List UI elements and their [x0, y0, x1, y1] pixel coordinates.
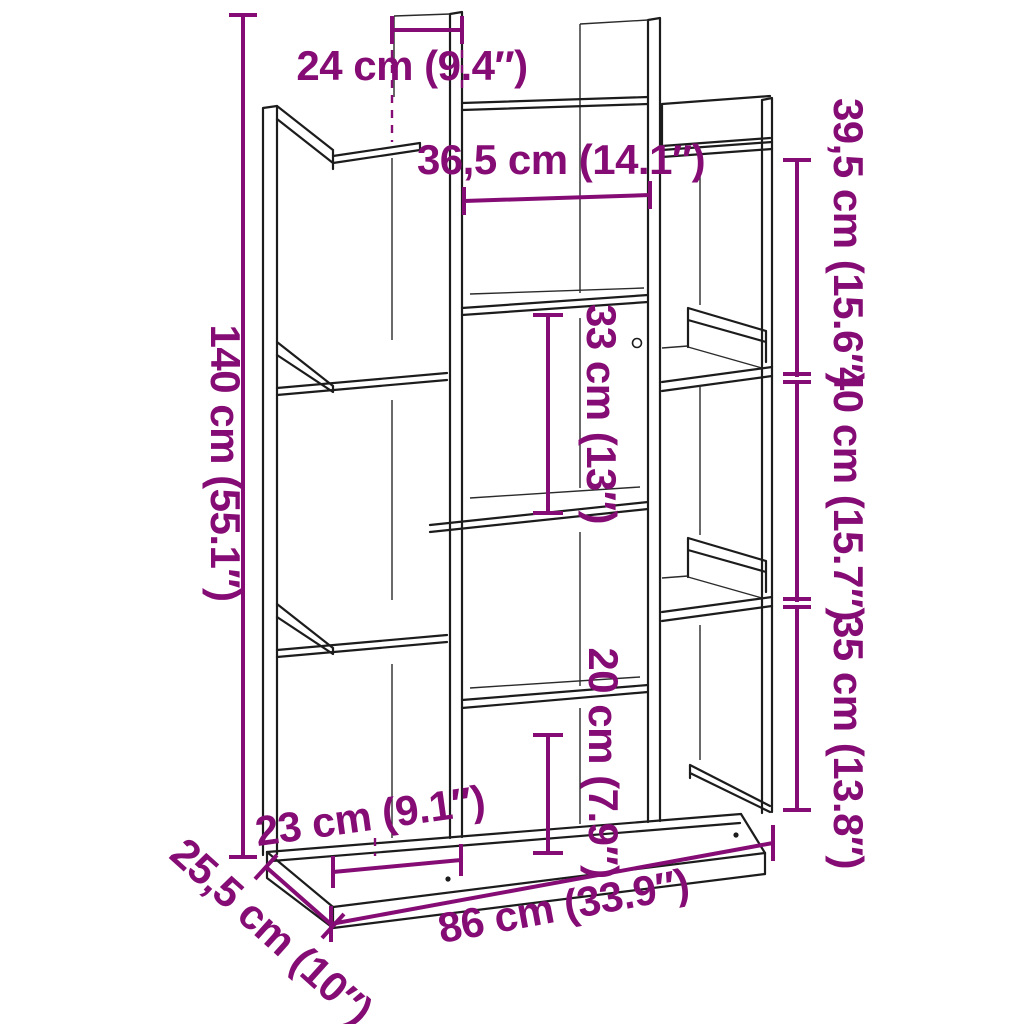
dim-right-middle-opening-height-label: 40 cm (15.7″)	[825, 367, 872, 621]
dim-total-width-label: 86 cm (33.9″)	[434, 859, 692, 952]
dim-center-opening-width: 36,5 cm (14.1″)	[417, 136, 705, 215]
dim-total-height-label: 140 cm (55.1″)	[202, 325, 249, 602]
dim-right-upper-opening-height-label: 39,5 cm (15.6″)	[825, 98, 872, 386]
dim-total-width: 86 cm (33.9″)	[331, 825, 773, 952]
dim-bottom-center-opening-height-label: 20 cm (7.9″)	[580, 647, 627, 878]
right-upright-panel	[762, 98, 772, 813]
dim-top-panel-depth-label: 24 cm (9.4″)	[296, 42, 527, 89]
dim-right-lower-opening-height: 35 cm (13.8″)	[783, 607, 872, 869]
dim-right-upper-opening-height: 39,5 cm (15.6″)	[783, 98, 872, 386]
dim-right-lower-opening-height-label: 35 cm (13.8″)	[825, 615, 872, 869]
dim-bottom-left-opening-width: 23 cm (9.1″)	[252, 776, 488, 888]
dim-center-opening-width-label: 36,5 cm (14.1″)	[417, 136, 705, 183]
dim-center-opening-height-label: 33 cm (13″)	[578, 304, 625, 524]
dim-top-panel-depth: 24 cm (9.4″)	[296, 16, 527, 142]
cam-hole	[633, 339, 642, 348]
left-column-shelves	[277, 106, 447, 838]
left-upright-panel	[263, 106, 277, 855]
dim-right-middle-opening-height: 40 cm (15.7″)	[783, 367, 872, 621]
right-column-shelves	[662, 96, 772, 812]
dim-total-height: 140 cm (55.1″)	[202, 15, 257, 857]
bookcase-dimension-diagram: 24 cm (9.4″) 36,5 cm (14.1″) 140 cm (55.…	[0, 0, 1024, 1024]
dim-center-opening-height: 33 cm (13″)	[533, 304, 625, 524]
